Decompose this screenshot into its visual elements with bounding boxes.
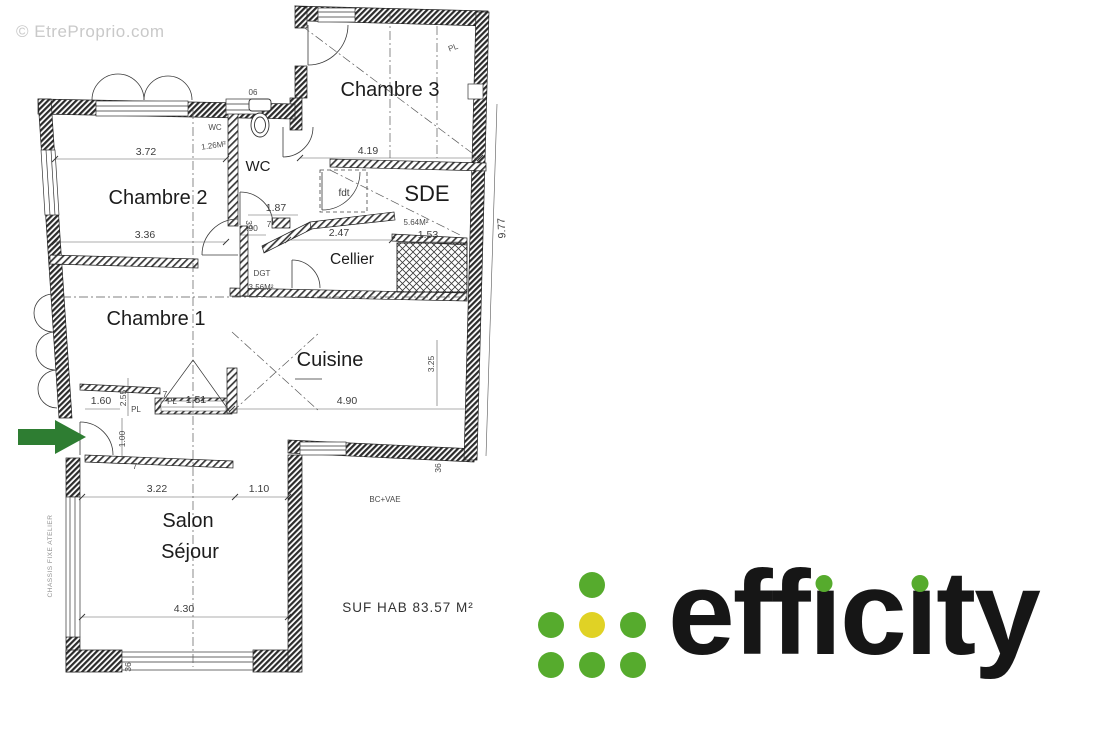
room-label-salon: Salon — [162, 510, 213, 532]
logo-letter: f — [771, 553, 809, 673]
logo-dot — [579, 652, 605, 678]
entrance-arrow — [18, 420, 86, 454]
dim-salon-a: 3.22 — [147, 483, 168, 495]
logo-dot — [579, 572, 605, 598]
sde-area: 5.64M² — [404, 218, 429, 227]
logo-letter: f — [733, 553, 771, 673]
logo-dot — [620, 612, 646, 638]
room-label-chambre2: Chambre 2 — [109, 187, 208, 209]
logo-letter: y — [974, 553, 1039, 673]
room-label-sde: SDE — [404, 181, 449, 206]
room-label-cellier: Cellier — [330, 251, 374, 268]
green-i-dot — [816, 575, 833, 592]
dim-cuisine-d: 3.25 — [426, 355, 436, 372]
dim-c3-width: 4.19 — [358, 145, 379, 157]
logo-dot — [538, 652, 564, 678]
logo-letter-i: ı — [809, 553, 840, 673]
logo-letter-i: ı — [905, 553, 936, 673]
dim-cuisine-w: 4.90 — [337, 395, 358, 407]
logo-letter: t — [936, 553, 974, 673]
dim-house-d: 9.77 — [495, 217, 508, 238]
closet-label-c3: PL — [447, 42, 460, 54]
dim-cellier-w: 2.47 — [329, 227, 350, 239]
chassis-label: CHASSIS FIXE ATELIER — [47, 515, 54, 598]
dim-c1-d: 2.55 — [118, 389, 128, 406]
logo-dot — [538, 612, 564, 638]
dim-salon-b: 1.10 — [249, 483, 270, 495]
dim-36b: 36 — [123, 662, 133, 672]
logo-dots — [533, 565, 653, 685]
dim-wc-pass: 1.87 — [266, 202, 287, 214]
efficity-wordmark: effıcıty — [668, 553, 1039, 673]
closet-label-c1b: PL — [167, 397, 177, 406]
logo-letter: e — [668, 553, 733, 673]
room-label-sejour: Séjour — [161, 541, 219, 563]
bc-vae-label: BC+VAE — [369, 495, 400, 504]
dim-entry-b: 1.00 — [117, 430, 127, 447]
dim-32: 32 — [244, 220, 254, 230]
room-label-chambre1: Chambre 1 — [107, 308, 206, 330]
dim-7c: 7 — [133, 461, 138, 471]
dim-7a: 7 — [267, 219, 272, 229]
closet-label-c1a: PL — [131, 405, 141, 414]
green-i-dot — [912, 575, 929, 592]
dim-36a: 36 — [433, 463, 443, 473]
room-label-wc: WC — [246, 158, 271, 175]
toilet-icon — [249, 99, 271, 137]
dim-closet-w: 1.51 — [186, 394, 207, 406]
technical-block — [397, 243, 467, 292]
logo-letter: c — [840, 553, 905, 673]
dim-sde-w: 1.53 — [418, 229, 439, 241]
wc-area: 1.26M² — [201, 139, 227, 151]
window-tag-06: 06 — [249, 88, 258, 97]
wc-small-label: WC — [208, 123, 222, 132]
dim-c2-top: 3.72 — [136, 146, 157, 158]
room-label-cuisine: Cuisine — [297, 349, 364, 371]
dim-salon-w: 4.30 — [174, 603, 195, 615]
dgt-area: 3.56M² — [249, 283, 274, 292]
dim-7b: 7 — [163, 389, 168, 399]
surface-habitable: SUF HAB 83.57 M² — [342, 600, 474, 615]
logo-dot — [579, 612, 605, 638]
dgt-label: DGT — [254, 269, 271, 278]
dim-entry-a: 1.60 — [91, 395, 112, 407]
efficity-logo: effıcıty — [533, 562, 1093, 712]
fdt-label: fdt — [338, 188, 349, 199]
room-label-chambre3: Chambre 3 — [341, 79, 440, 101]
logo-dot — [620, 652, 646, 678]
dim-c2-bottom: 3.36 — [135, 229, 156, 241]
